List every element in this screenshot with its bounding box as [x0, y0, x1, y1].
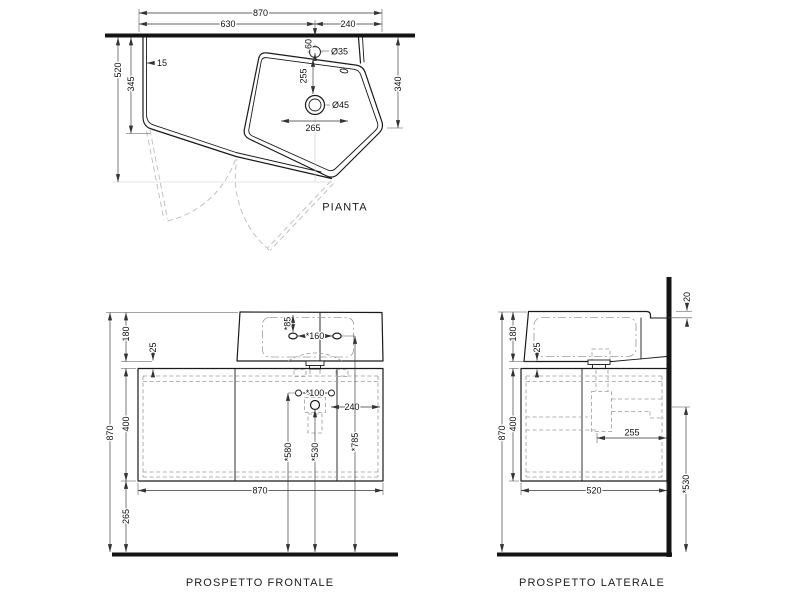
- wall-pipe-hidden: [612, 399, 665, 418]
- countertop-right-edge-outer: [359, 38, 361, 64]
- drain-hole-outer: [306, 96, 325, 115]
- dim-side-depth-total: 520: [586, 486, 601, 496]
- deck-hole-left: [289, 333, 297, 339]
- plan-door-swings: [147, 130, 334, 251]
- dim-front-width-total: 870: [252, 486, 267, 496]
- door-right-panel: [268, 181, 332, 248]
- technical-drawing-sheet: 870 630 240 520 345 15 340 60 255 Ø35 Ø4…: [0, 0, 800, 600]
- front-cabinet: [138, 369, 383, 482]
- callout-faucet-hole-diameter: Ø35: [331, 47, 348, 57]
- dim-side-height-total: 870: [497, 425, 507, 440]
- hinge-mark-left: [294, 370, 306, 377]
- dim-front-hole-depth: *85: [283, 317, 293, 331]
- side-floor-line: [497, 553, 672, 557]
- drain-fitting-hidden: [592, 349, 610, 361]
- dim-plan-width-left: 630: [220, 19, 235, 29]
- drawing-canvas: 870 630 240 520 345 15 340 60 255 Ø35 Ø4…: [0, 0, 800, 600]
- dim-front-drain-to-edge: 240: [344, 402, 359, 412]
- waste-outlet: [311, 401, 320, 410]
- dim-front-cabinet-height: 400: [121, 416, 131, 431]
- countertop-front-edge-outer: [143, 38, 332, 179]
- mount-hole-right: [329, 390, 335, 396]
- dim-front-hole-height: *785: [350, 433, 360, 452]
- plan-view-title: PIANTA: [322, 202, 368, 214]
- dim-plan-side-gap: 15: [157, 58, 167, 68]
- plan-wall-line: [105, 34, 415, 38]
- front-view-title: PROSPETTO FRONTALE: [186, 577, 334, 589]
- dim-front-height-total: 870: [105, 425, 115, 440]
- dim-front-mount-height: *580: [283, 443, 293, 462]
- dim-plan-depth-right: 340: [393, 76, 403, 91]
- dim-side-siphon-depth: 255: [624, 428, 639, 438]
- door-right-swing-arc: [235, 159, 269, 250]
- side-view: 870 180 25 400 520 255 *530 20 PROSPETTO…: [497, 277, 692, 589]
- basin-bowl-hidden-side: [534, 318, 636, 357]
- front-view: 870 180 25 400 265 870 *85 *160 *100 240…: [105, 312, 398, 589]
- side-basin: [524, 312, 667, 369]
- cabinet-side-outline: [521, 369, 667, 482]
- siphon-hidden-side: [592, 392, 612, 432]
- dim-plan-drain-offset: 265: [305, 123, 320, 133]
- dim-side-gap: 25: [532, 342, 542, 352]
- dim-front-gap: 25: [148, 342, 158, 352]
- countertop-front-edge-inner: [147, 38, 322, 173]
- drain-hole-inner: [309, 99, 321, 111]
- drain-connector-upper: [306, 361, 324, 366]
- dim-side-cabinet-height: 400: [508, 416, 518, 431]
- dim-front-holes-spacing: *160: [306, 331, 325, 341]
- side-plumbing-hidden: [592, 370, 665, 432]
- countertop-right-edge-inner: [363, 38, 365, 63]
- plan-view: 870 630 240 520 345 15 340 60 255 Ø35 Ø4…: [105, 8, 415, 251]
- tailpipe-hidden: [596, 370, 608, 391]
- drain-connector-side-upper: [588, 360, 610, 365]
- dim-plan-width-total: 870: [253, 8, 268, 18]
- dim-side-drain-height: *530: [681, 475, 691, 494]
- dim-side-basin-height: 180: [508, 326, 518, 341]
- callout-drain-hole-diameter: Ø45: [332, 100, 349, 110]
- dim-plan-depth-total: 520: [113, 62, 123, 77]
- hinge-mark-right: [336, 370, 348, 377]
- cabinet-front-outline: [138, 369, 383, 482]
- dim-front-drain-height: *530: [310, 443, 320, 462]
- plan-countertop-outline: [143, 38, 364, 179]
- door-left-swing-arc: [168, 158, 237, 222]
- dim-front-basin-height: 180: [121, 326, 131, 341]
- cabinet-hidden-frame: [143, 376, 378, 477]
- dim-plan-faucet-to-drain: 255: [299, 68, 309, 83]
- dim-front-mount-spacing: *100: [306, 388, 325, 398]
- deck-hole-right: [333, 333, 341, 339]
- front-floor-line: [112, 553, 398, 557]
- dim-side-ledge-drop: 20: [682, 292, 692, 302]
- door-left-panel: [147, 131, 165, 220]
- side-view-title: PROSPETTO LATERALE: [519, 577, 665, 589]
- dim-plan-faucet-offset: 60: [304, 39, 314, 49]
- front-dimensions: 870 180 25 400 265 870 *85 *160 *100 240…: [105, 313, 383, 553]
- basin-side-outline: [524, 312, 651, 362]
- dim-front-floor-clearance: 265: [121, 509, 131, 524]
- dim-plan-depth-corner: 345: [126, 76, 136, 91]
- mount-hole-left: [296, 390, 302, 396]
- basin-bottom-slant: [612, 357, 667, 362]
- dim-plan-width-right: 240: [340, 19, 355, 29]
- overflow-hole: [340, 68, 349, 73]
- side-cabinet: [521, 369, 667, 482]
